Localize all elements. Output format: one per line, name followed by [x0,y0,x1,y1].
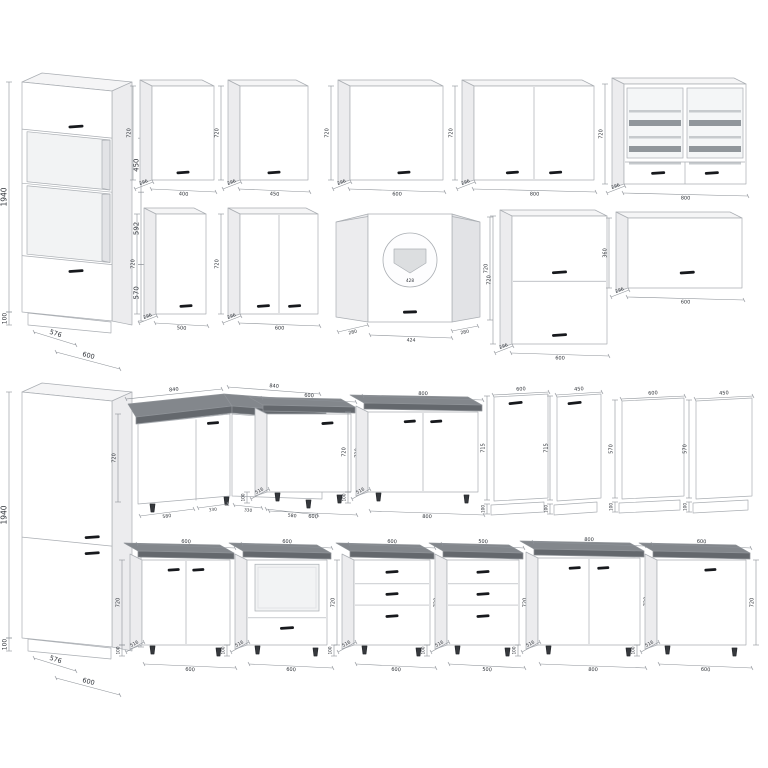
dim-label: 570 [682,444,688,454]
dim-label: 600 [387,539,397,545]
dim-label: 800 [588,667,598,673]
dim-label: 570 [608,444,614,454]
dim-label: 600 [308,514,318,520]
glass-stripe [629,136,681,139]
dim-label: 100 [630,646,635,654]
dim-label: 600 [555,355,565,361]
dim-label: 715 [543,443,549,453]
wall-cabinet-horizontal-600: 360296600 [602,212,745,306]
dim-label: 580 [162,513,172,520]
dim-label: 450 [719,390,729,396]
dim-label: 600 [185,667,195,673]
dim-label: 600 [304,393,314,399]
dim-label: 576 [48,654,62,665]
open-niche [27,186,110,263]
dim-label: 100 [511,646,516,654]
dim-label: 720 [483,264,489,274]
dim-label: 280 [348,329,358,337]
base-drawer-cabinet-600: 600720516100600 [327,539,443,673]
glass-stripe [689,110,741,113]
dim-label: 1940 [0,187,8,206]
glass-stripe [689,120,741,126]
dim-label: 100 [608,503,613,511]
dim-label: 330 [244,507,253,513]
dim-label: 600 [681,299,691,305]
tall-oven-housing-cabinet: 1940100450592570576600 [0,73,144,371]
dim-label: 720 [214,259,220,269]
dim-label: 800 [584,537,594,543]
base-oven-housing-cabinet-600: 600720516100600 [220,539,340,673]
glass-stripe [689,146,741,152]
wall-cabinet-450: 720296450 [214,80,311,198]
dim-label: 100 [240,493,245,501]
dim-label: 720 [126,128,132,138]
dim-label: 800 [530,191,540,197]
dim-label: 450 [132,158,140,171]
dim-label: 720 [598,129,604,139]
wall-cabinet-600-two-door: 720296600 [214,208,321,332]
dim-label: 600 [275,325,285,331]
wall-cabinet-flip-two-door-600: 720296600 [486,210,610,362]
dim-label: 600 [282,539,292,545]
dim-label: 500 [177,325,187,332]
dim-label: 600 [181,539,191,545]
dim-label: 400 [179,191,189,197]
dim-label: 720 [486,275,492,285]
glass-stripe [689,136,741,139]
wall-cabinet-500: 720296500 [130,208,209,332]
glass-stripe [629,110,681,113]
panel-plinth-part [619,500,680,513]
wall-cabinet-600: 720296600 [324,80,446,198]
dim-label: 600 [286,667,296,673]
cover-panel-450: 450570100 [682,390,754,513]
dim-label: 580 [287,513,296,520]
glass-stripe [629,146,681,152]
base-cabinet-800-two-door: 800720516100800 [341,391,485,520]
glass-stripe [689,162,741,165]
dim-label: 570 [132,286,140,299]
dim-label: 715 [480,443,486,453]
dim-label: 100 [480,505,485,513]
dim-label: 720 [111,453,117,463]
dim-label: 100 [115,646,120,654]
wall-cabinet-400: 720296400 [126,80,217,198]
dim-label: 500 [482,667,492,673]
dim-label: 280 [460,329,470,337]
panel-plinth-part [491,502,544,515]
kitchen-cabinet-dimension-diagram: 1940100450592570576600720296400720296450… [0,0,768,768]
dim-label: 840 [169,387,179,394]
dim-label: 100 [341,493,346,501]
dim-label: 720 [330,598,336,608]
panel-plinth-part [554,502,597,515]
dim-label: 100 [420,646,425,654]
dim-label: 720 [115,598,121,608]
dim-label: 800 [681,195,691,201]
kitchen-catalog-page: 1940100450592570576600720296400720296450… [0,0,768,768]
dim-label: 720 [341,447,347,457]
dim-label: 100 [682,503,687,511]
wall-cabinet-800-two-door: 720296800 [448,80,597,198]
dim-label: 800 [422,514,432,520]
glass-stripe [629,162,681,165]
dim-label: 100 [543,505,548,513]
oven-niche [255,564,319,611]
wall-cabinet-800-glass: 720296800 [598,78,749,202]
dim-label: 600 [648,390,658,396]
door-handle [403,310,417,313]
dim-label: 576 [48,328,62,339]
dim-label: 720 [749,598,755,608]
base-sink-cabinet-600-two-door: 600720516100600 [115,539,237,673]
dim-label: 600 [697,539,707,545]
dim-label: 100 [327,646,332,654]
dim-label: 100 [1,639,8,651]
plan-dim-label: 428 [406,278,414,283]
open-niche [27,132,110,190]
glass-stripe [629,120,681,126]
dim-label: 100 [1,313,8,325]
dim-label: 600 [701,667,711,673]
dim-label: 500 [478,539,488,545]
dim-label: 720 [130,259,136,269]
dim-label: 100 [220,646,225,654]
dim-label: 600 [391,667,401,673]
dishwasher-front-panel-450: 450715100 [543,386,603,515]
dim-label: 360 [602,248,608,258]
base-cabinet-600-single-door-lower: 600720516100600 [630,539,759,673]
cover-panel-600: 600570100 [608,390,686,513]
dim-label: 330 [209,506,218,512]
panel-plinth-part [693,500,748,513]
dim-label: 450 [574,386,584,393]
dim-label: 450 [270,191,280,197]
dim-label: 1940 [0,505,8,524]
wall-corner-cabinet: 428720280424280 [336,214,493,344]
dim-label: 800 [418,391,428,397]
tall-fridge-housing-cabinet: 1940100720576600 [0,383,144,697]
dim-label: 600 [392,191,402,197]
dim-label: 720 [214,128,220,138]
dim-label: 840 [269,383,279,390]
dim-label: 720 [324,128,330,138]
dim-label: 600 [516,386,526,393]
dishwasher-front-panel-600: 600715100 [480,386,550,515]
dim-label: 592 [132,222,140,235]
dim-label: 720 [448,128,454,138]
dim-label: 424 [407,337,416,343]
